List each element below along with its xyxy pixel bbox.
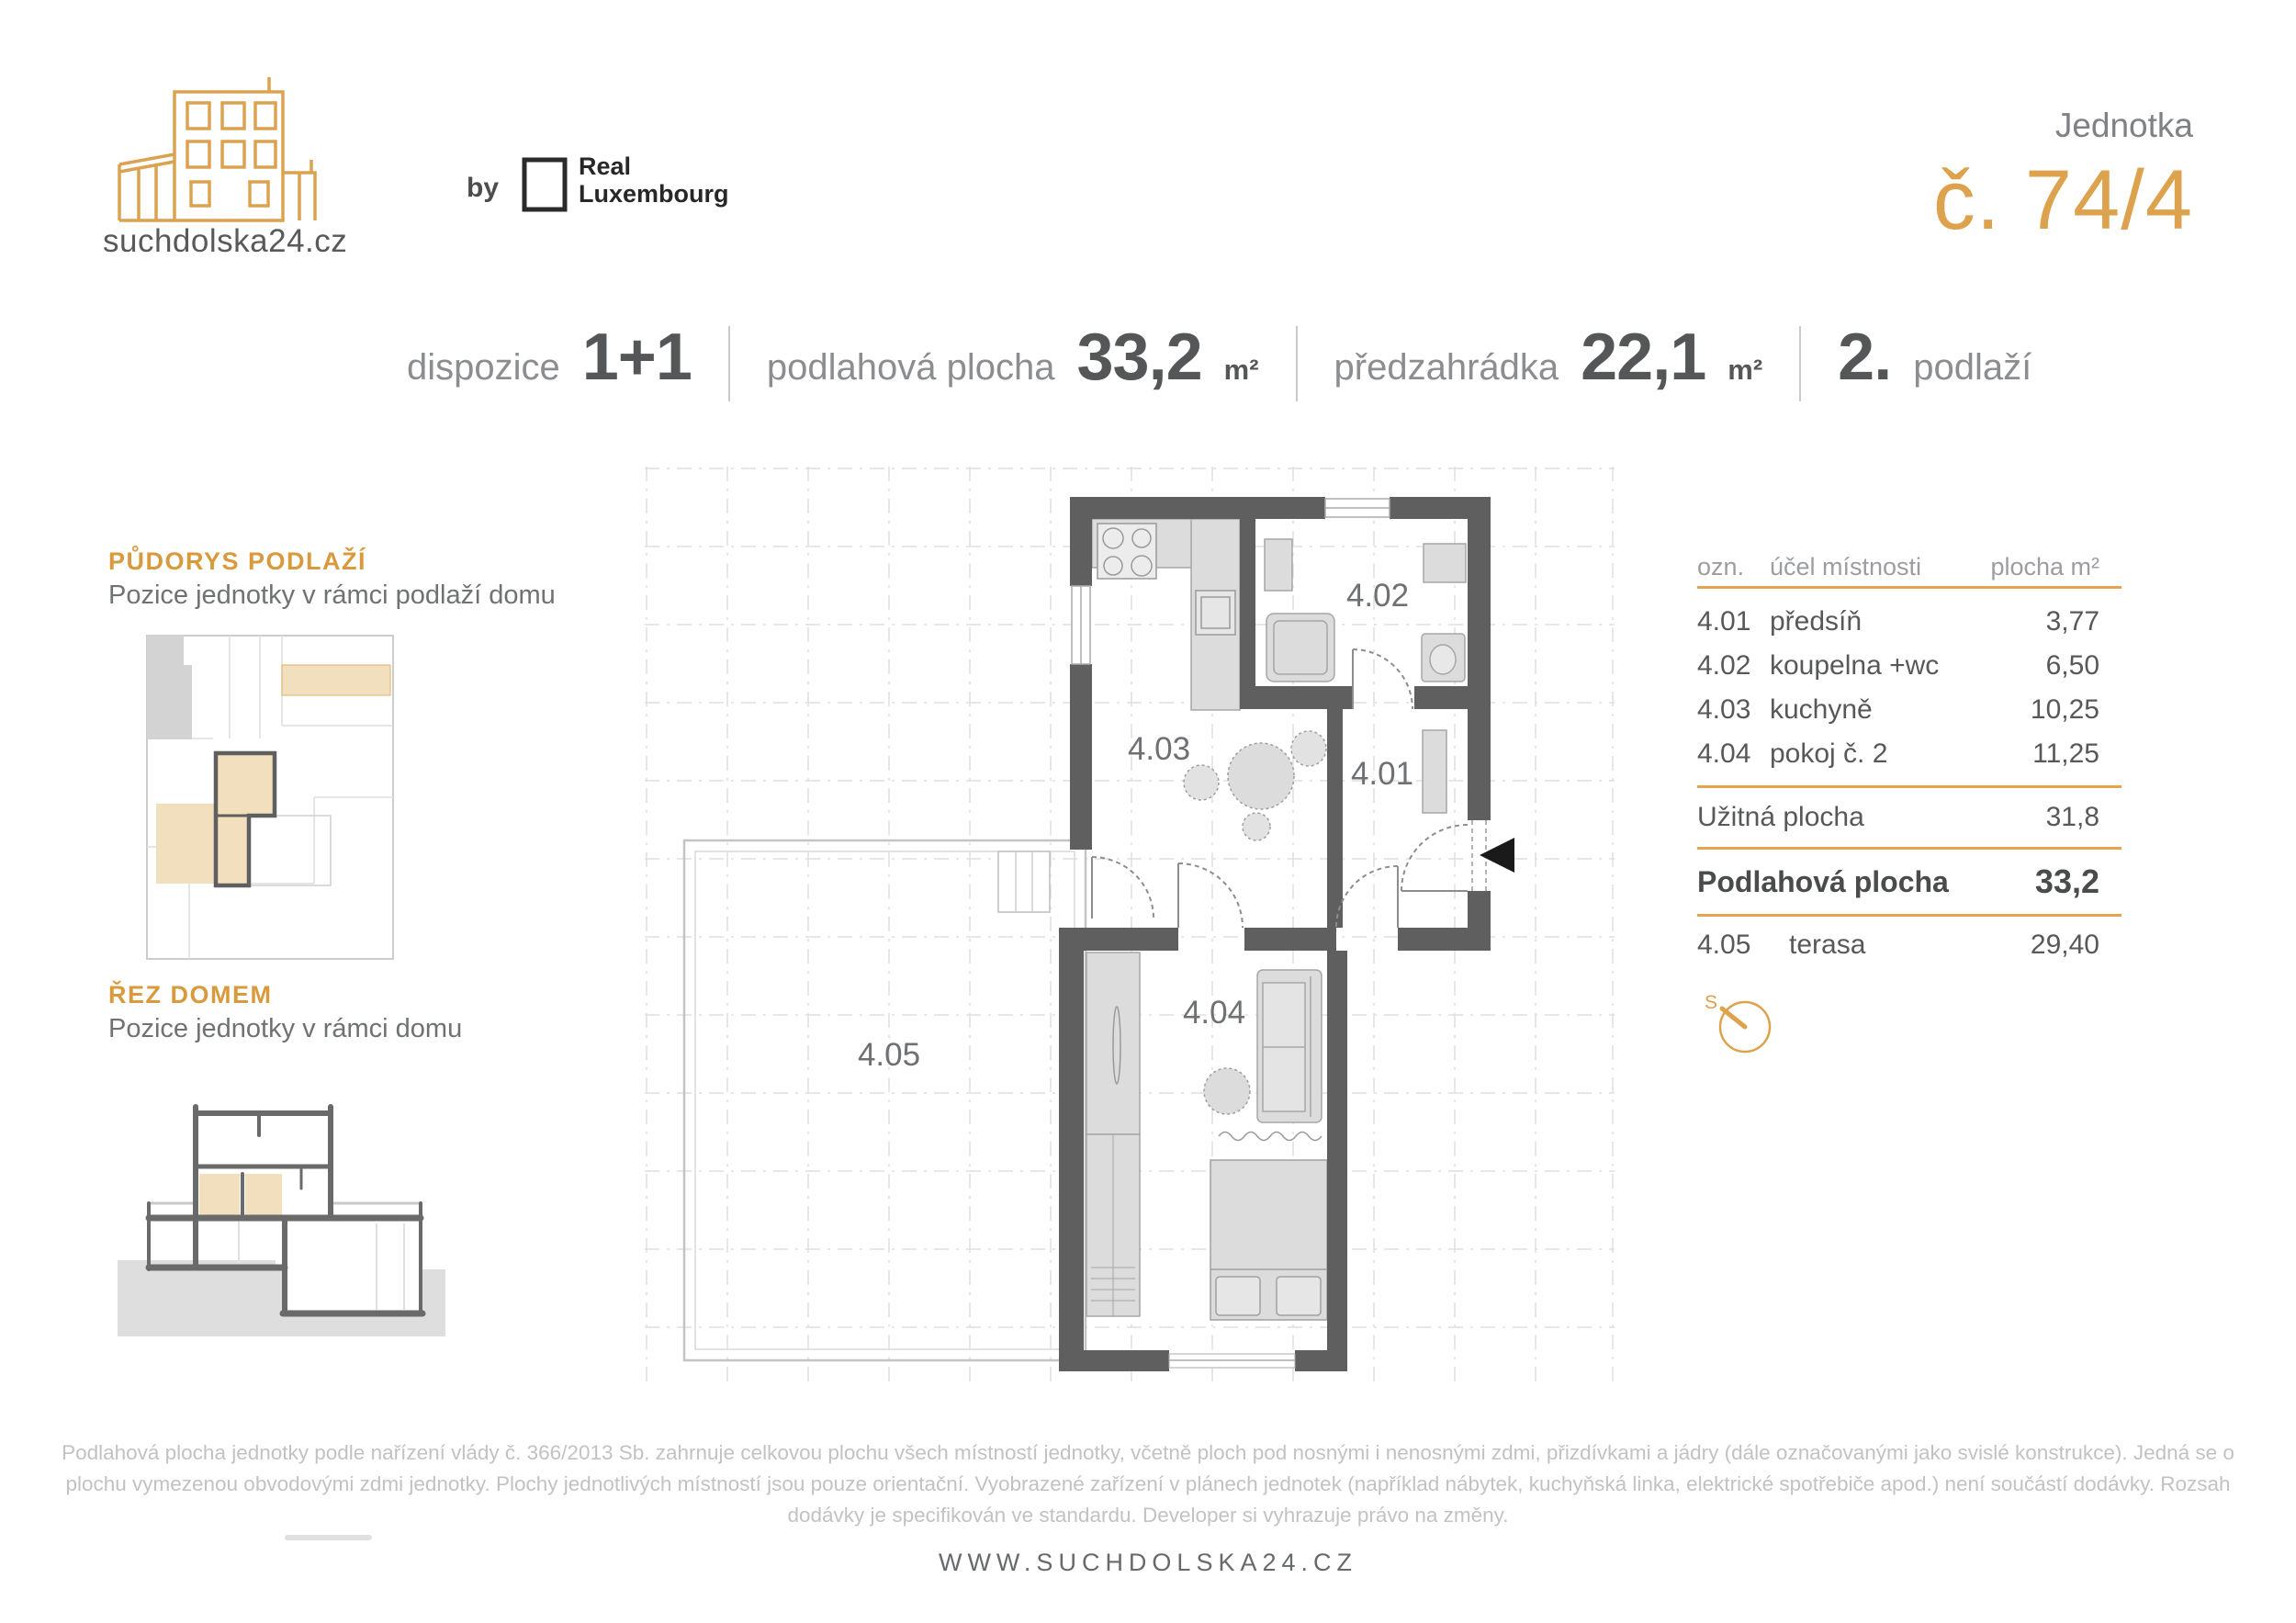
room-table: ozn. účel místnosti plocha m² 4.01 předs… [1697,547,2122,1068]
terasa-id: 4.05 [1697,930,1789,961]
by-label: by [467,173,499,204]
podlahova-label: Podlahová plocha [1697,865,1949,899]
website-url: WWW.SUCHDOLSKA24.CZ [0,1549,2296,1577]
row-id: 4.04 [1697,738,1770,770]
hall-cabinet [1423,730,1446,813]
micro-text [285,1535,372,1540]
spec-podlahova-unit: m² [1224,354,1259,387]
row-id: 4.03 [1697,694,1770,726]
spec-dispozice: dispozice 1+1 [407,320,692,395]
uzitna-row: Užitná plocha 31,8 [1697,788,2122,847]
row-name: předsíň [1770,606,2046,637]
terasa-row: 4.05 terasa 29,40 [1697,917,2122,974]
podlahova-value: 33,2 [2035,862,2122,901]
compass-icon: S [1697,986,1798,1064]
table-header-plocha: plocha m² [1990,553,2122,581]
room-label-405: 4.05 [858,1037,920,1073]
spec-predzahradka-label: předzahrádka [1334,347,1559,389]
spec-podlazi-value: 2. [1838,320,1891,395]
row-name: koupelna +wc [1770,650,2046,682]
row-id: 4.02 [1697,650,1770,682]
site-logo [103,66,332,227]
spec-podlazi-label: podlaží [1913,347,2032,389]
table-header-ucel: účel místnosti [1770,553,1990,581]
spec-podlahova-label: podlahová plocha [767,347,1055,389]
spec-podlahova-value: 33,2 [1077,320,1202,395]
partner-name: Real Luxembourg [579,152,729,208]
pudorys-subtitle: Pozice jednotky v rámci podlaží domu [108,580,556,611]
real-luxembourg-logo-icon [521,156,568,218]
disclaimer-line1: Podlahová plocha jednotky podle nařízení… [0,1437,2296,1469]
dining-set [1184,731,1326,840]
row-area: 11,25 [2032,738,2122,770]
table-row: 4.02 koupelna +wc 6,50 [1697,644,2122,688]
uzitna-value: 31,8 [2046,802,2122,833]
table-row: 4.04 pokoj č. 2 11,25 [1697,732,2122,776]
spec-dispozice-label: dispozice [407,347,560,389]
row-area: 6,50 [2046,650,2122,682]
room-label-403: 4.03 [1128,731,1190,767]
spec-separator [1296,326,1298,401]
spec-separator [1799,326,1801,401]
compass: S [1697,986,2122,1068]
room-label-401: 4.01 [1351,756,1413,792]
row-area: 3,77 [2046,606,2122,637]
table-header-ozn: ozn. [1697,553,1770,581]
terrace-steps [998,851,1050,912]
spec-predzahradka: předzahrádka 22,1 m² [1334,320,1763,395]
site-name: suchdolska24.cz [103,223,347,260]
table-row: 4.03 kuchyně 10,25 [1697,688,2122,732]
rez-subtitle: Pozice jednotky v rámci domu [108,1014,462,1044]
kitchen-furniture [1092,519,1240,710]
spec-row: dispozice 1+1 podlahová plocha 33,2 m² p… [407,320,2032,408]
room-label-402: 4.02 [1346,578,1409,614]
rez-title: ŘEZ DOMEM [108,981,273,1009]
room-label-404: 4.04 [1183,995,1245,1031]
section-thumbnail [101,1065,468,1346]
partner-name-line2: Luxembourg [579,180,729,208]
floor-plan: 4.02 4.03 4.01 4.04 4.05 [643,459,1616,1401]
terrace-outline [684,840,1086,1360]
spec-predzahradka-unit: m² [1728,354,1762,387]
pudorys-title: PŮDORYS PODLAŽÍ [108,547,366,576]
podlahova-row: Podlahová plocha 33,2 [1697,850,2122,914]
row-name: kuchyně [1770,694,2031,726]
spec-podlahova: podlahová plocha 33,2 m² [767,320,1259,395]
floor-position-thumbnail [101,617,450,989]
row-area: 10,25 [2031,694,2122,726]
terasa-area: 29,40 [2031,930,2122,961]
spec-dispozice-value: 1+1 [582,320,692,395]
row-name: pokoj č. 2 [1770,738,2032,770]
spec-predzahradka-value: 22,1 [1581,320,1705,395]
disclaimer-line2: plochu vymezenou obvodovými zdmi jednotk… [0,1469,2296,1500]
table-header: ozn. účel místnosti plocha m² [1697,547,2122,586]
row-id: 4.01 [1697,606,1770,637]
uzitna-label: Užitná plocha [1697,802,1864,833]
unit-number: č. 74/4 [1458,152,2193,249]
spec-separator [728,326,730,401]
compass-label: S [1705,992,1717,1013]
spec-podlazi: 2. podlaží [1838,320,2032,395]
partner-name-line1: Real [579,152,729,180]
unit-label: Jednotka [1642,107,2193,145]
table-row: 4.01 předsíň 3,77 [1697,600,2122,644]
terasa-name: terasa [1789,930,2031,961]
disclaimer: Podlahová plocha jednotky podle nařízení… [0,1437,2296,1531]
disclaimer-line3: dodávky je specifikován ve standardu. De… [0,1500,2296,1531]
building-logo-icon [103,66,332,227]
